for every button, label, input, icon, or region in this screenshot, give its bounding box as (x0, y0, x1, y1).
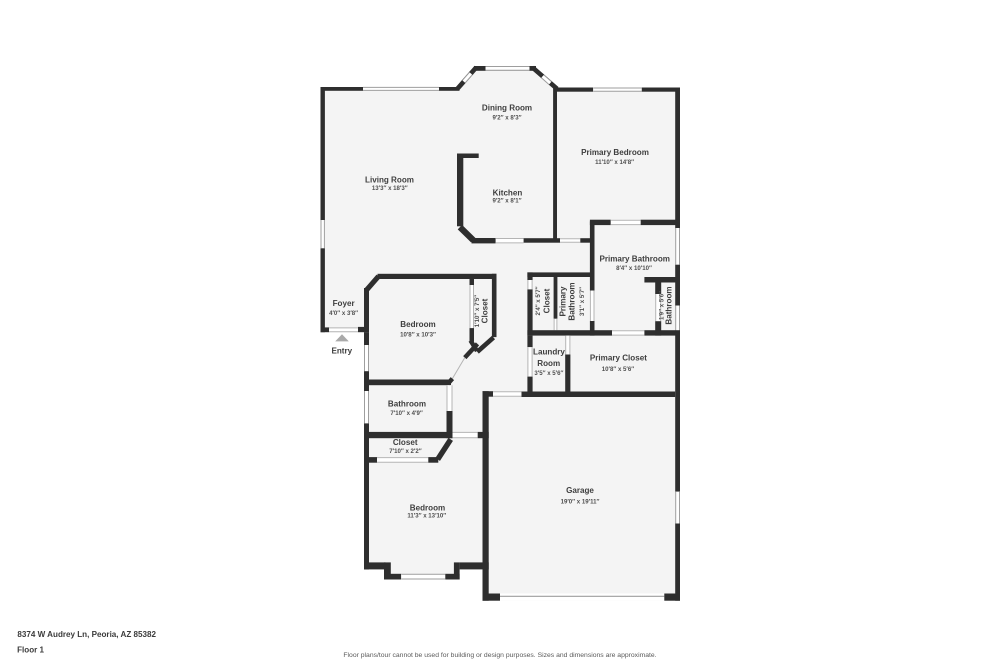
svg-text:8′4″ x 10′10″: 8′4″ x 10′10″ (616, 265, 652, 272)
svg-text:11′10″ x 14′8″: 11′10″ x 14′8″ (595, 159, 634, 166)
svg-text:Bathroom: Bathroom (388, 400, 426, 409)
svg-text:1′9″ x 5′6″: 1′9″ x 5′6″ (659, 291, 666, 320)
svg-text:13′3″ x 18′3″: 13′3″ x 18′3″ (372, 185, 408, 192)
svg-text:Closet: Closet (393, 438, 418, 447)
svg-text:Primary Bathroom: Primary Bathroom (599, 255, 669, 264)
svg-text:10′8″ x 10′3″: 10′8″ x 10′3″ (400, 331, 436, 338)
svg-text:Primary: Primary (558, 286, 567, 317)
svg-text:Primary Closet: Primary Closet (590, 353, 647, 362)
svg-text:9′2″ x 8′3″: 9′2″ x 8′3″ (492, 115, 521, 122)
svg-text:3′1″ x 5′7″: 3′1″ x 5′7″ (579, 287, 586, 316)
svg-text:1′10″ x 7′5″: 1′10″ x 7′5″ (474, 295, 481, 327)
svg-text:Bathroom: Bathroom (664, 286, 673, 324)
svg-text:Garage: Garage (566, 486, 594, 495)
svg-text:Closet: Closet (543, 288, 552, 313)
svg-text:Dining Room: Dining Room (482, 104, 532, 113)
svg-text:Floor plans/tour cannot be use: Floor plans/tour cannot be used for buil… (343, 652, 656, 659)
svg-text:Living Room: Living Room (365, 175, 414, 184)
svg-text:Bathroom: Bathroom (567, 282, 576, 320)
svg-text:Primary Bedroom: Primary Bedroom (581, 148, 649, 157)
svg-text:Bedroom: Bedroom (410, 504, 445, 513)
svg-text:7′10″ x 2′2″: 7′10″ x 2′2″ (389, 448, 421, 455)
svg-text:7′10″ x 4′9″: 7′10″ x 4′9″ (390, 410, 422, 417)
svg-text:Foyer: Foyer (333, 299, 356, 308)
svg-text:19′0″ x 19′11″: 19′0″ x 19′11″ (561, 499, 600, 506)
svg-text:Room: Room (537, 359, 560, 368)
svg-text:10′8″ x 5′6″: 10′8″ x 5′6″ (602, 366, 634, 373)
svg-text:Entry: Entry (331, 347, 352, 356)
svg-text:9′2″ x 8′1″: 9′2″ x 8′1″ (492, 197, 521, 204)
svg-text:2′4″ x 5′7″: 2′4″ x 5′7″ (535, 286, 542, 315)
svg-text:Floor 1: Floor 1 (17, 646, 44, 655)
svg-text:Laundry: Laundry (533, 348, 565, 357)
svg-text:3′5″ x 5′6″: 3′5″ x 5′6″ (534, 370, 563, 377)
svg-text:Bedroom: Bedroom (400, 320, 435, 329)
svg-text:4′0″ x 3′8″: 4′0″ x 3′8″ (329, 310, 358, 317)
svg-text:8374 W Audrey Ln, Peoria, AZ 8: 8374 W Audrey Ln, Peoria, AZ 85382 (17, 630, 156, 639)
svg-text:Closet: Closet (480, 298, 489, 323)
svg-text:11′3″ x 13′10″: 11′3″ x 13′10″ (407, 513, 446, 520)
